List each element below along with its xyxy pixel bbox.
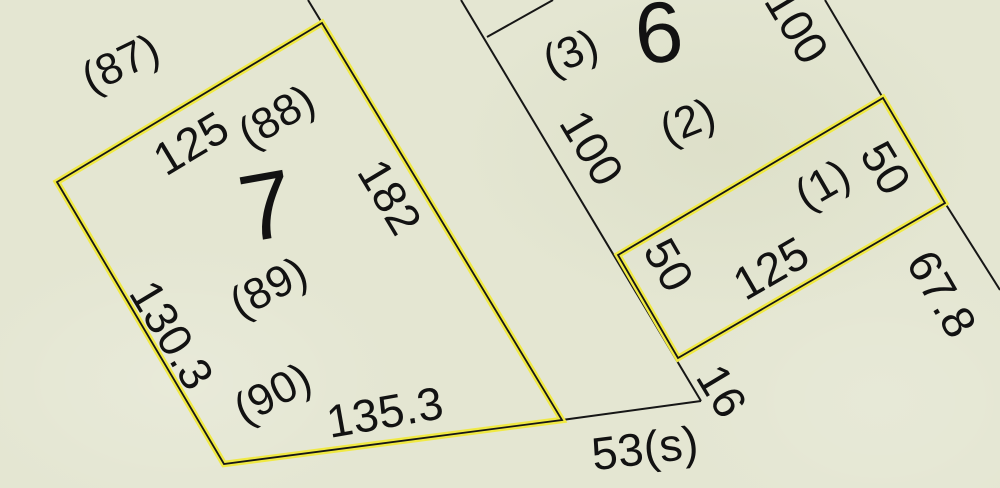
dim-125-parcel1: 125 xyxy=(726,229,817,308)
dim-100-lot6-east: 100 xyxy=(757,0,837,71)
dim-53s-south-road: 53(s) xyxy=(589,419,701,478)
ref-number-90: (90) xyxy=(227,356,319,433)
lot-number-7: 7 xyxy=(232,156,301,259)
dim-130-3-lot7-west: 130.3 xyxy=(122,273,222,398)
dim-67-8-southeast: 67.8 xyxy=(899,243,985,345)
ref-number-3: (3) xyxy=(537,22,605,84)
dim-182-lot7-east: 182 xyxy=(350,152,430,243)
dim-50-parcel1-east: 50 xyxy=(853,134,919,202)
dim-125-lot7-north: 125 xyxy=(146,103,237,183)
ref-number-1: (1) xyxy=(788,152,858,218)
dim-50-parcel1-west: 50 xyxy=(636,231,702,299)
dim-16-boundary: 16 xyxy=(689,357,755,425)
ref-number-89: (89) xyxy=(223,250,315,327)
dim-100-lot6-west: 100 xyxy=(552,103,632,194)
ref-number-2: (2) xyxy=(654,91,722,153)
ref-number-88: (88) xyxy=(231,77,322,156)
map-labels-layer: (87)125(88)7182130.3(89)(90)135.353(s)16… xyxy=(0,0,1000,488)
lot-number-6: 6 xyxy=(630,0,687,78)
ref-number-87: (87) xyxy=(75,27,166,102)
dim-135-3-lot7-south: 135.3 xyxy=(323,379,447,445)
plat-map: (87)125(88)7182130.3(89)(90)135.353(s)16… xyxy=(0,0,1000,488)
